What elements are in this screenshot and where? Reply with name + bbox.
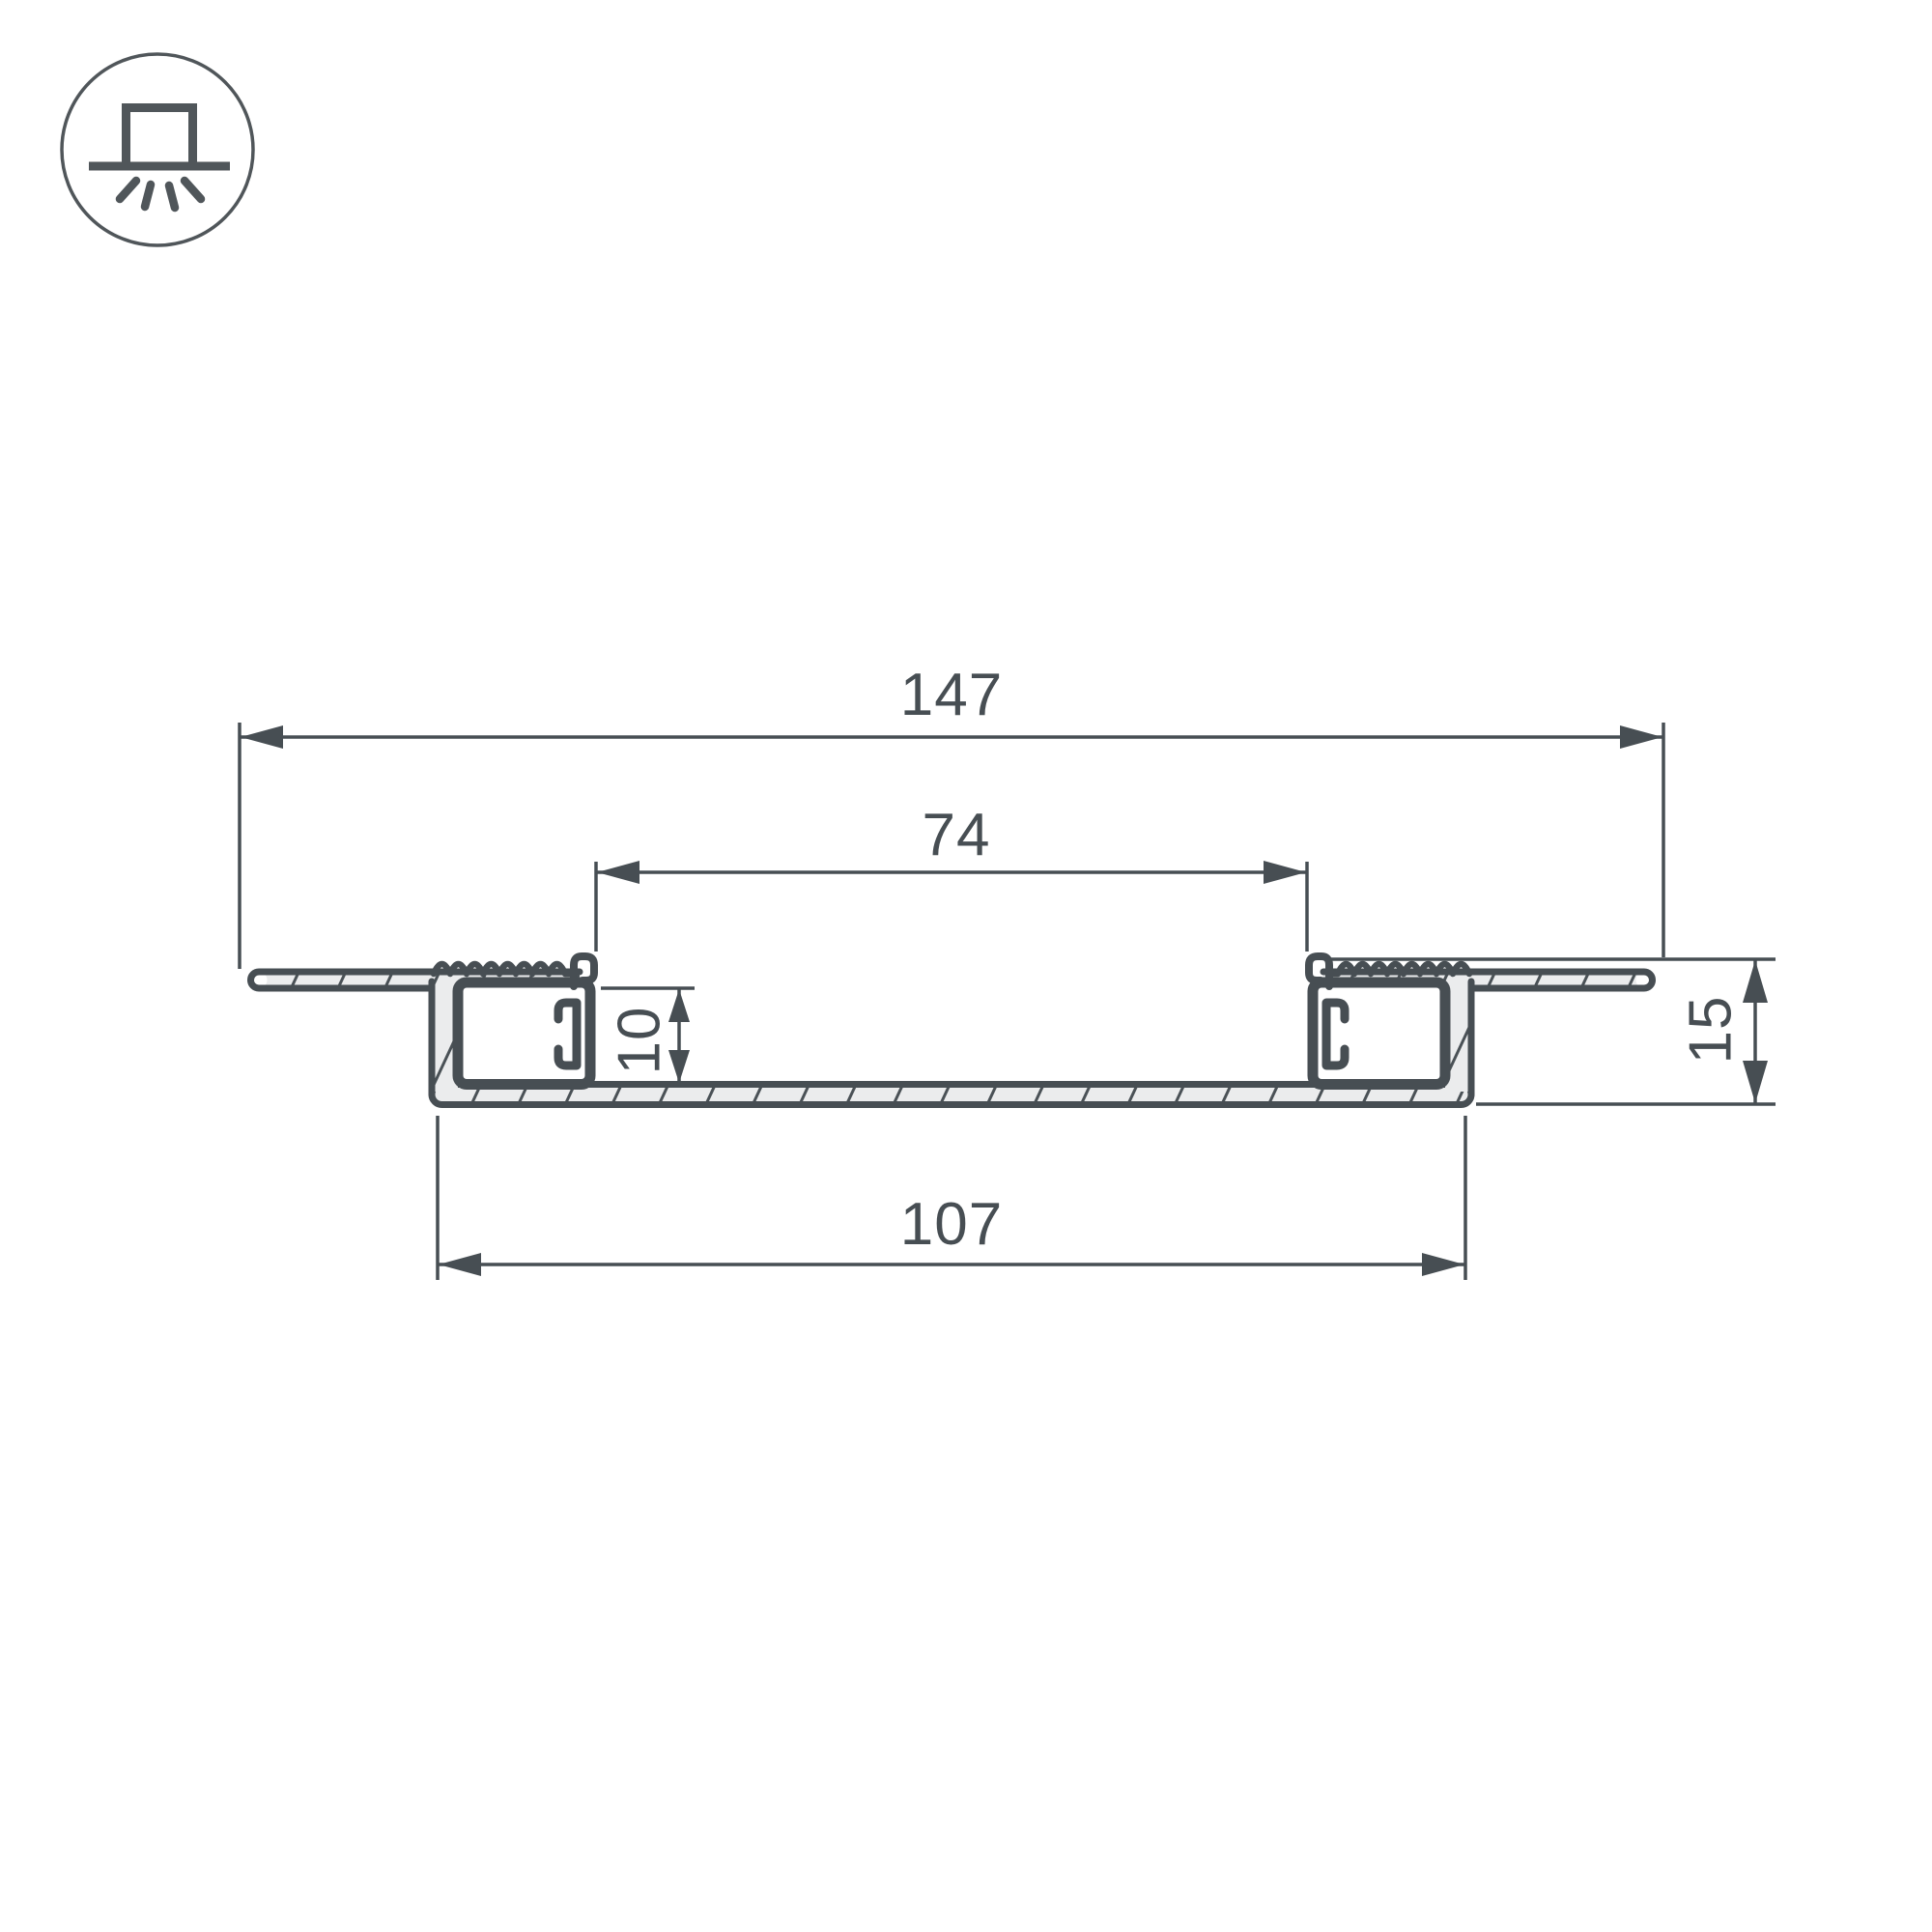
label-channel-height: 10 [607,1007,673,1075]
background [0,0,1932,1932]
label-overall-width: 147 [900,662,1003,728]
label-inner-opening: 74 [923,802,991,868]
label-total-height: 15 [1678,996,1745,1065]
drawing-page: 147 74 10 107 15 [0,0,1932,1932]
icon-fixture-square [127,108,193,167]
profile-section-drawing: 147 74 10 107 15 [0,0,1932,1932]
label-base-width: 107 [900,1191,1003,1258]
